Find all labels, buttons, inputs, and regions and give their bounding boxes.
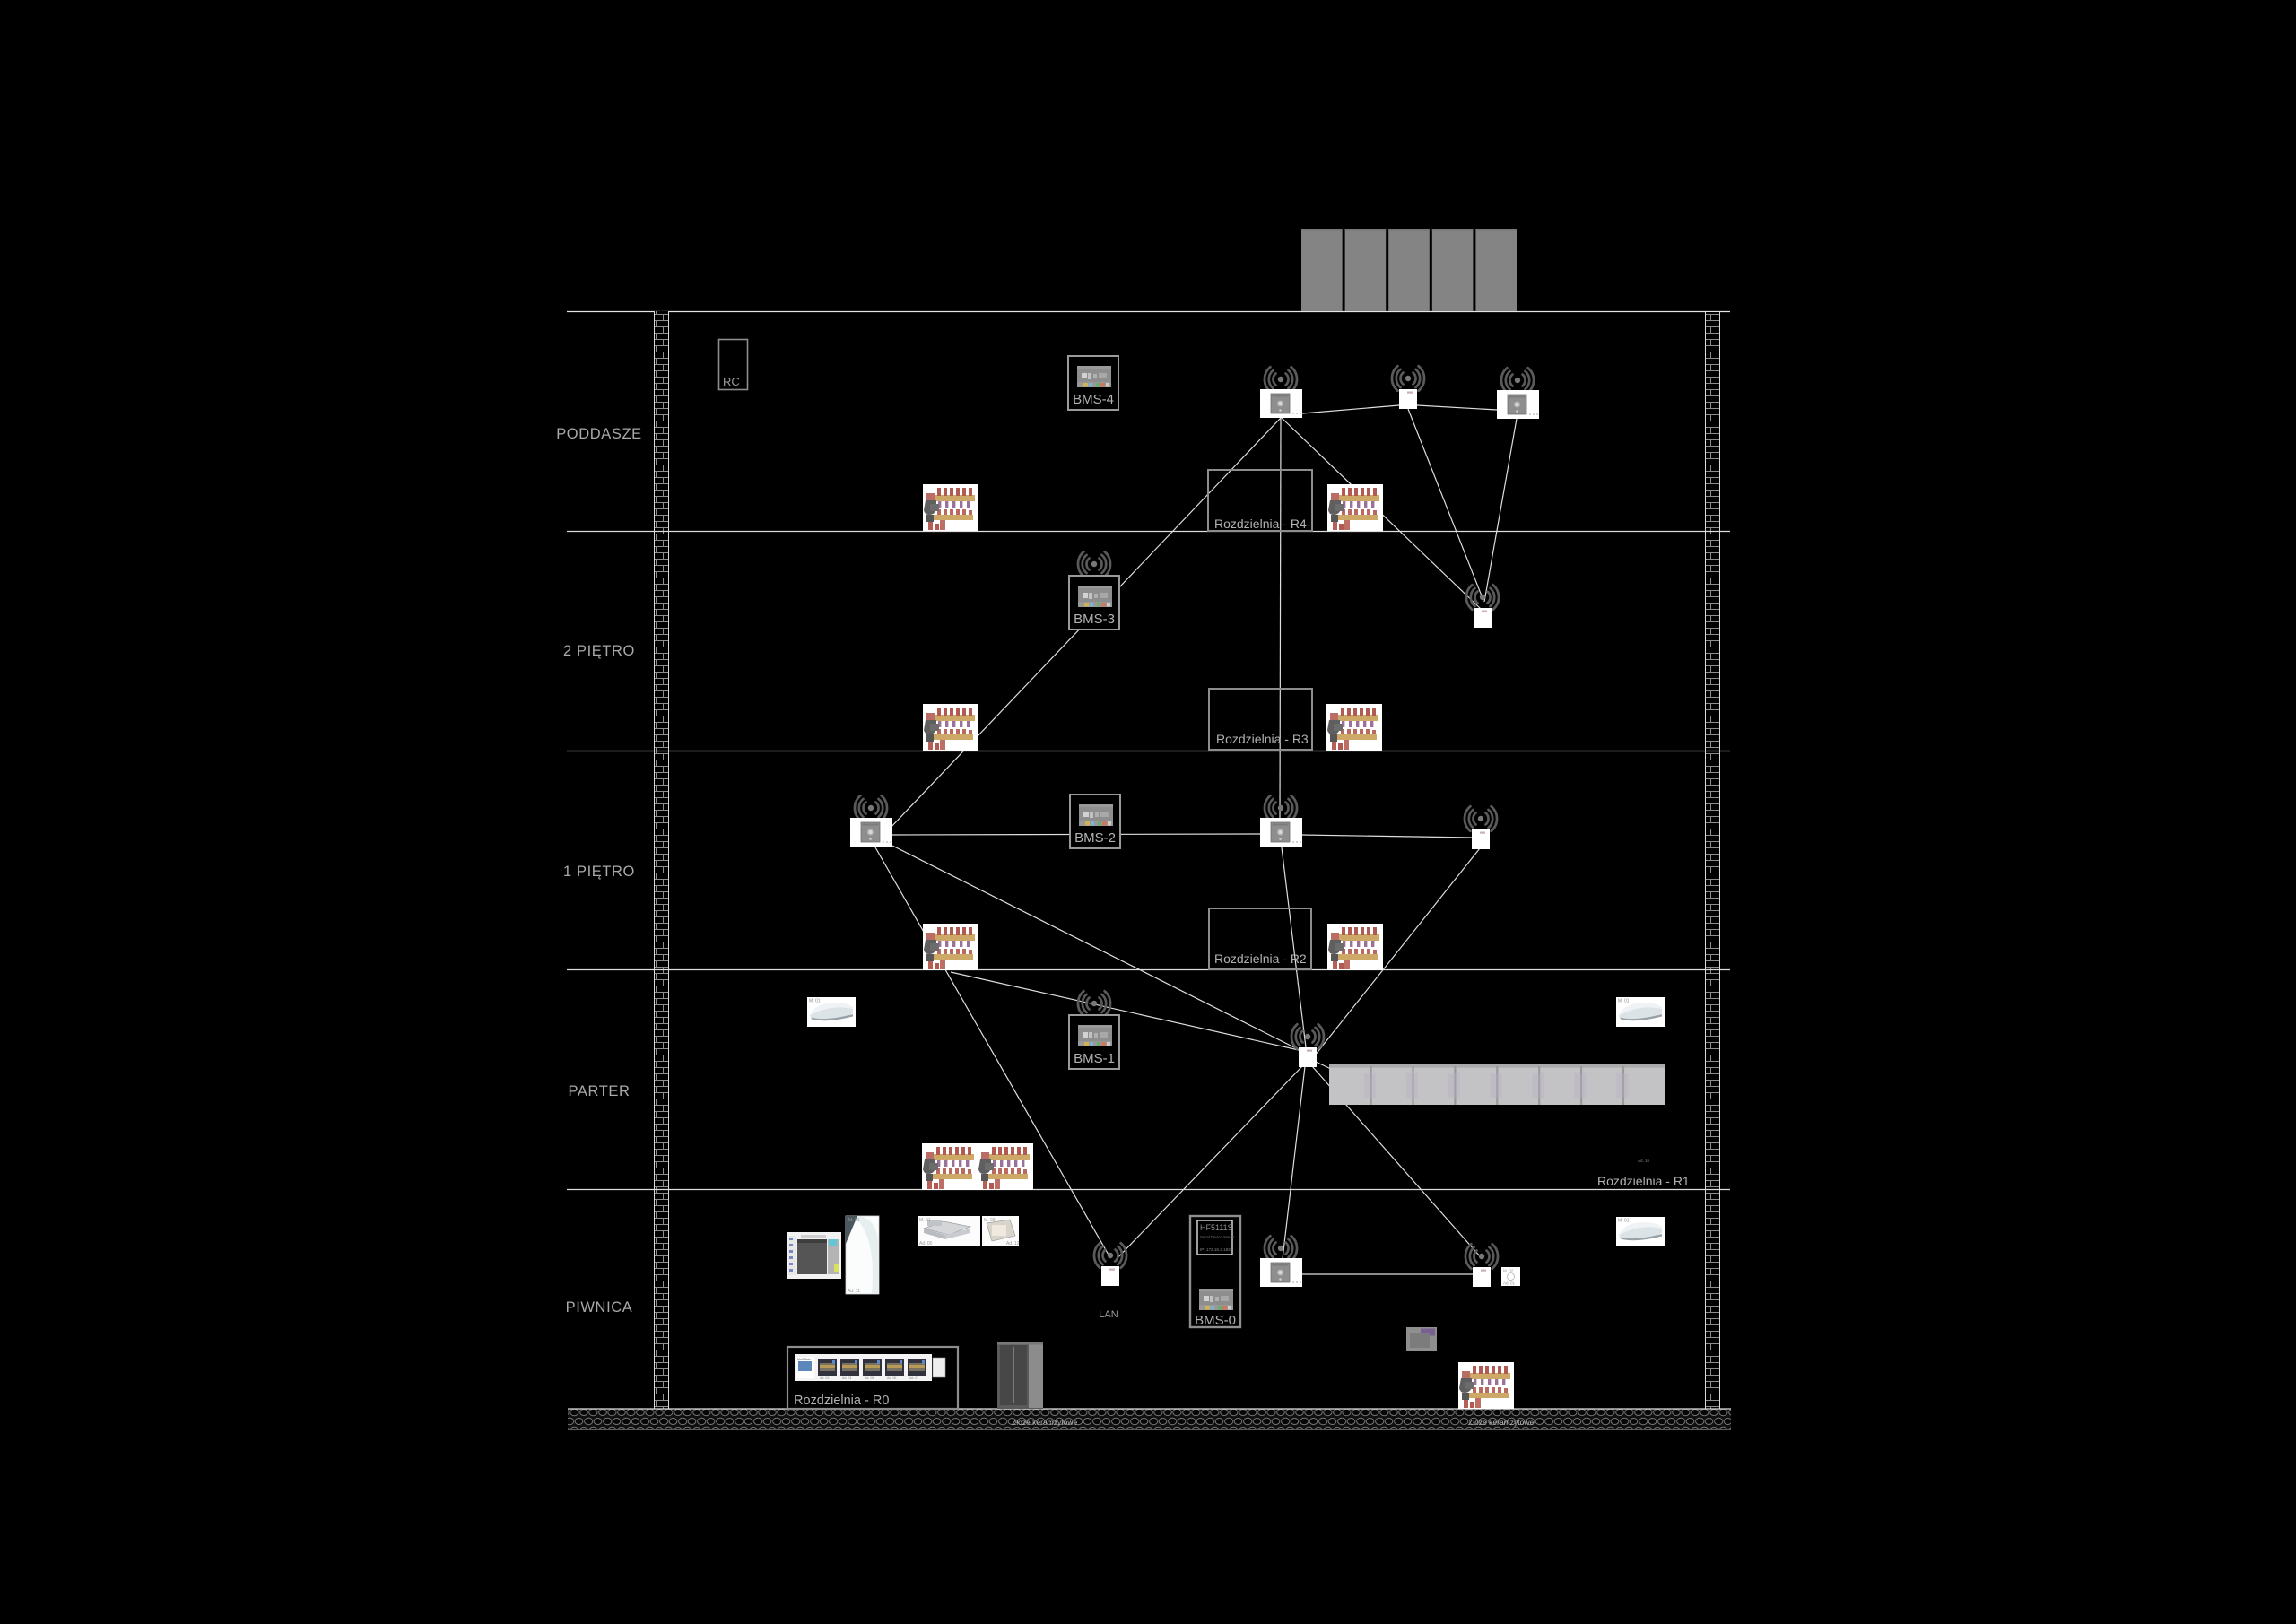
svg-text:Ad. 01: Ad. 01 [1503, 1281, 1516, 1286]
svg-text:Ad. 05: Ad. 05 [865, 1376, 874, 1380]
svg-text:Złoże keramzytowe: Złoże keramzytowe [1468, 1418, 1534, 1427]
svg-text:Złoże keramzytowe: Złoże keramzytowe [1012, 1418, 1077, 1427]
svg-text:PARTER: PARTER [568, 1083, 630, 1099]
svg-text:BMS-3: BMS-3 [1074, 612, 1115, 627]
svg-text:LAN: LAN [1099, 1309, 1118, 1320]
svg-text:Ad. 03: Ad. 03 [820, 1376, 829, 1380]
svg-text:M. 03: M. 03 [984, 1218, 996, 1223]
svg-text:2 PIĘTRO: 2 PIĘTRO [563, 643, 635, 659]
svg-text:Ad. 07: Ad. 07 [909, 1376, 918, 1380]
svg-text:BMS-0: BMS-0 [1195, 1313, 1236, 1328]
svg-text:BMS-4: BMS-4 [1073, 392, 1114, 407]
svg-text:BMS-2: BMS-2 [1074, 830, 1116, 846]
svg-text:Rozdzielnia - R0: Rozdzielnia - R0 [794, 1394, 889, 1408]
svg-text:PODDASZE: PODDASZE [556, 426, 642, 442]
svg-text:PIWNICA: PIWNICA [566, 1299, 633, 1316]
svg-text:MultiGate: MultiGate [797, 1358, 811, 1361]
svg-text:M. 01: M. 01 [919, 1218, 931, 1223]
svg-text:1 PIĘTRO: 1 PIĘTRO [563, 864, 635, 880]
svg-text:Rozdzielnia - R3: Rozdzielnia - R3 [1216, 732, 1309, 746]
svg-text:Ad. 16: Ad. 16 [1638, 1159, 1650, 1163]
svg-text:Ad. 11: Ad. 11 [848, 1289, 860, 1294]
svg-text:Ad. 12: Ad. 12 [1006, 1241, 1020, 1246]
svg-text:Ad. 00: Ad. 00 [919, 1241, 933, 1246]
svg-text:RC: RC [723, 375, 740, 388]
svg-text:Rozdzielnia - R4: Rozdzielnia - R4 [1214, 517, 1307, 531]
svg-text:Rozdzielnia - R2: Rozdzielnia - R2 [1214, 951, 1307, 966]
svg-text:BMS-1: BMS-1 [1074, 1051, 1115, 1066]
svg-text:HF5111S: HF5111S [1200, 1223, 1233, 1232]
svg-text:Ad. 04: Ad. 04 [842, 1376, 851, 1380]
svg-text:Serial Device Server: Serial Device Server [1200, 1235, 1235, 1239]
svg-text:M. 02: M. 02 [1503, 1269, 1514, 1273]
svg-text:IP: 172.16.4.183: IP: 172.16.4.183 [1200, 1247, 1231, 1252]
svg-text:Ad. 06: Ad. 06 [887, 1376, 896, 1380]
svg-text:M. 01: M. 01 [848, 1218, 860, 1223]
svg-text:Rozdzielnia - R1: Rozdzielnia - R1 [1597, 1174, 1690, 1188]
